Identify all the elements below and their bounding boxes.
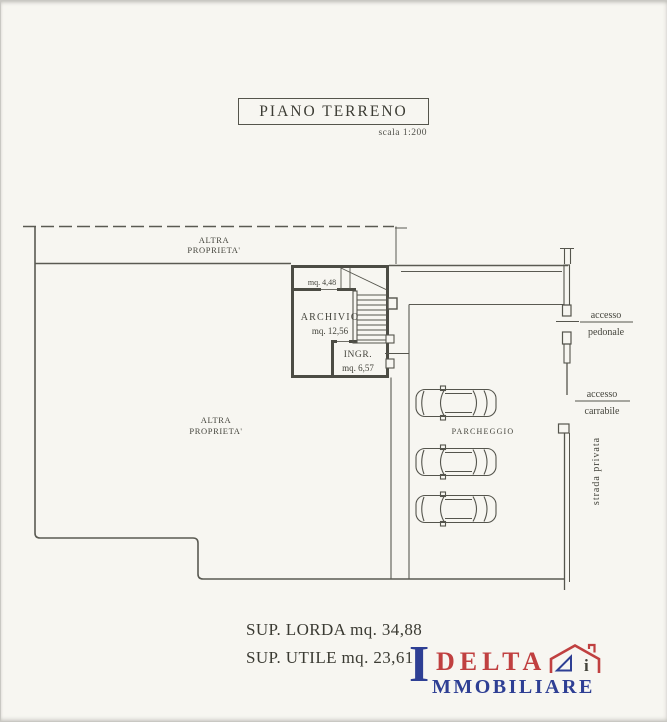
archivio-label: ARCHIVIO <box>301 312 360 323</box>
parking-cars <box>416 386 496 526</box>
parking-label: PARCHEGGIO <box>452 427 515 436</box>
stair-room-area: mq. 4,48 <box>308 278 336 287</box>
car-icon <box>416 492 496 526</box>
boundary-connector <box>395 227 407 265</box>
private-street-label: strada privata <box>591 437 602 505</box>
top-strip-label-line2: PROPRIETA' <box>187 245 240 255</box>
car-icon <box>416 386 496 420</box>
courtyard-lines <box>389 266 568 580</box>
logo-initial-letter: I <box>409 639 429 691</box>
access-pedestrian-line1: accesso <box>591 310 622 321</box>
logo-house-letter: i <box>584 656 589 675</box>
sup-utile-text: SUP. UTILE mq. 23,61 <box>246 644 422 672</box>
access-pedestrian-line2: pedonale <box>588 327 625 338</box>
sup-lorda-text: SUP. LORDA mq. 34,88 <box>246 616 422 644</box>
main-area-label-line2: PROPRIETA' <box>189 426 242 436</box>
ingresso-area: mq. 6,57 <box>342 363 374 373</box>
ingresso-label: INGR. <box>344 350 373 360</box>
floor-plan-drawing: ALTRA PROPRIETA' ALTRA PROPRIETA' mq. 4,… <box>1 1 667 721</box>
logo-triangle <box>557 657 571 671</box>
main-area-label-line1: ALTRA <box>201 415 232 425</box>
agency-logo: I DELTA i MMOBILIARE <box>409 643 609 703</box>
stair-direction-line <box>341 268 387 290</box>
top-strip-label-line1: ALTRA <box>199 235 230 245</box>
access-driveway-line1: accesso <box>587 389 618 400</box>
surface-summary: SUP. LORDA mq. 34,88 SUP. UTILE mq. 23,6… <box>246 616 422 672</box>
driveway-gate-post <box>559 424 570 433</box>
stair-niche <box>388 298 397 309</box>
boundary-right-wall <box>556 248 579 590</box>
scanned-floor-plan-page: PIANO TERRENO scala 1:200 <box>0 0 667 722</box>
car-icon <box>416 445 496 479</box>
logo-word-immobiliare: MMOBILIARE <box>432 677 595 697</box>
logo-word-delta: DELTA <box>436 649 546 675</box>
archivio-area: mq. 12,56 <box>312 326 349 336</box>
boundary-left-bottom <box>35 226 564 579</box>
house-icon: i <box>548 643 606 675</box>
access-driveway-line2: carrabile <box>585 406 621 417</box>
